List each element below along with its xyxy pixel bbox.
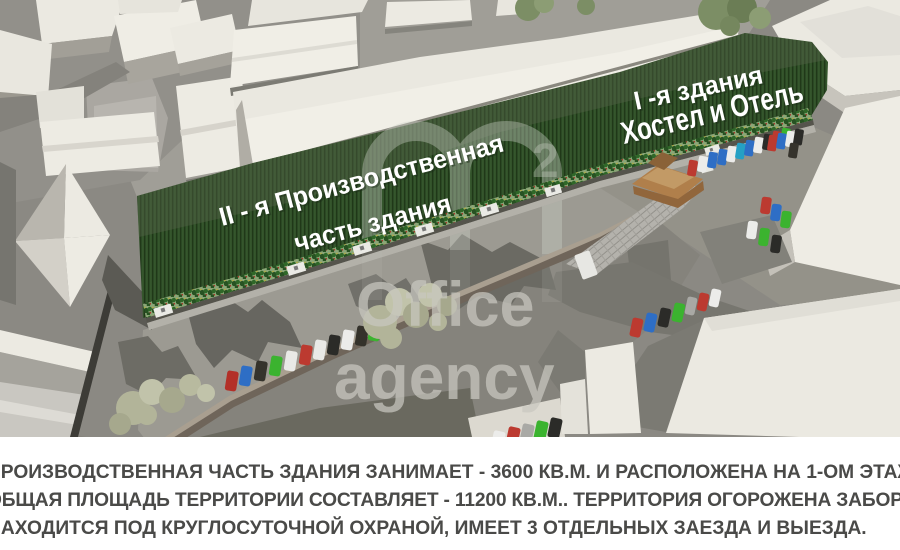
- svg-text:agency: agency: [334, 341, 555, 413]
- svg-text:Office: Office: [356, 270, 535, 340]
- svg-text:НАХОДИТСЯ ПОД КРУГЛОСУТОЧНОЙ О: НАХОДИТСЯ ПОД КРУГЛОСУТОЧНОЙ ОХРАНОЙ, ИМ…: [0, 517, 867, 539]
- svg-text:ПРОИЗВОДСТВЕННАЯ ЧАСТЬ ЗДАНИЯ: ПРОИЗВОДСТВЕННАЯ ЧАСТЬ ЗДАНИЯ ЗАНИМАЕТ -…: [0, 462, 900, 483]
- svg-text:ОБЩАЯ ПЛОЩАДЬ ТЕРРИТОРИИ СОСТА: ОБЩАЯ ПЛОЩАДЬ ТЕРРИТОРИИ СОСТАВЛЯЕТ - 11…: [0, 490, 900, 511]
